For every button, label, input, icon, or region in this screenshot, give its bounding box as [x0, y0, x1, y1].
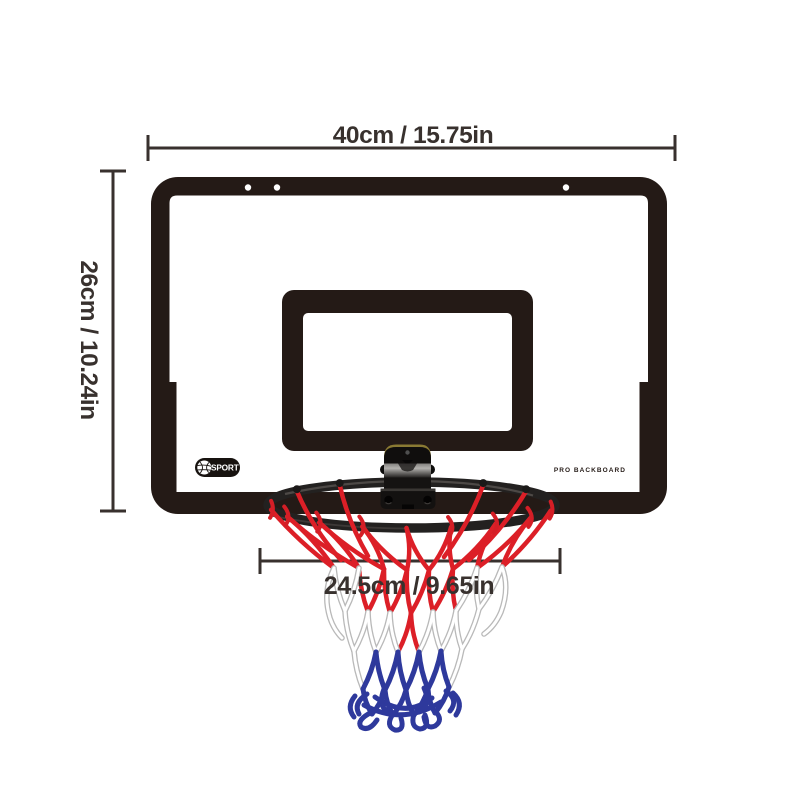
svg-text:SPORT: SPORT [211, 463, 239, 473]
svg-text:26cm / 10.24in: 26cm / 10.24in [75, 260, 102, 419]
svg-text:24.5cm / 9.65in: 24.5cm / 9.65in [324, 572, 495, 600]
svg-text:PRO BACKBOARD: PRO BACKBOARD [554, 467, 626, 474]
svg-text:40cm / 15.75in: 40cm / 15.75in [333, 122, 494, 149]
